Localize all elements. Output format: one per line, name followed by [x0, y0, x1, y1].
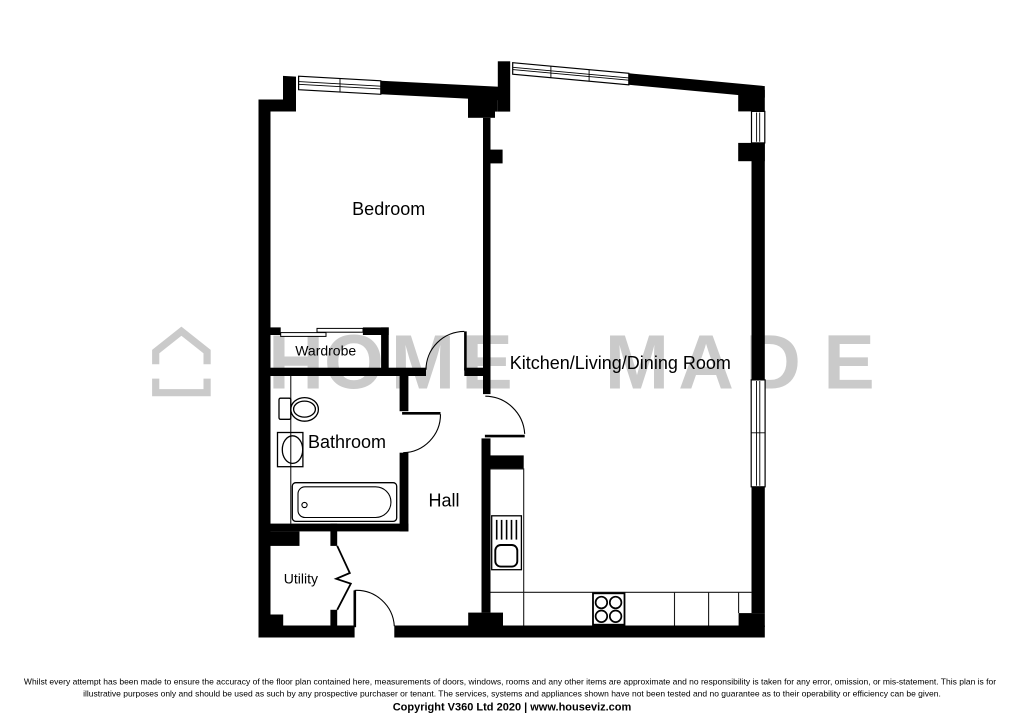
- svg-text:Bathroom: Bathroom: [308, 432, 386, 452]
- svg-text:Utility: Utility: [284, 570, 318, 586]
- svg-text:Hall: Hall: [428, 491, 459, 511]
- svg-text:E: E: [823, 320, 874, 406]
- svg-text:Kitchen/Living/Dining Room: Kitchen/Living/Dining Room: [510, 353, 731, 373]
- svg-text:illustrative purposes only and: illustrative purposes only and should be…: [83, 689, 941, 699]
- svg-text:Bedroom: Bedroom: [352, 199, 425, 219]
- svg-text:Whilst every attempt has been: Whilst every attempt has been made to en…: [24, 677, 996, 687]
- svg-text:Wardrobe: Wardrobe: [295, 343, 356, 359]
- svg-text:Copyright V360 Ltd 2020 | www.: Copyright V360 Ltd 2020 | www.houseviz.c…: [393, 702, 632, 714]
